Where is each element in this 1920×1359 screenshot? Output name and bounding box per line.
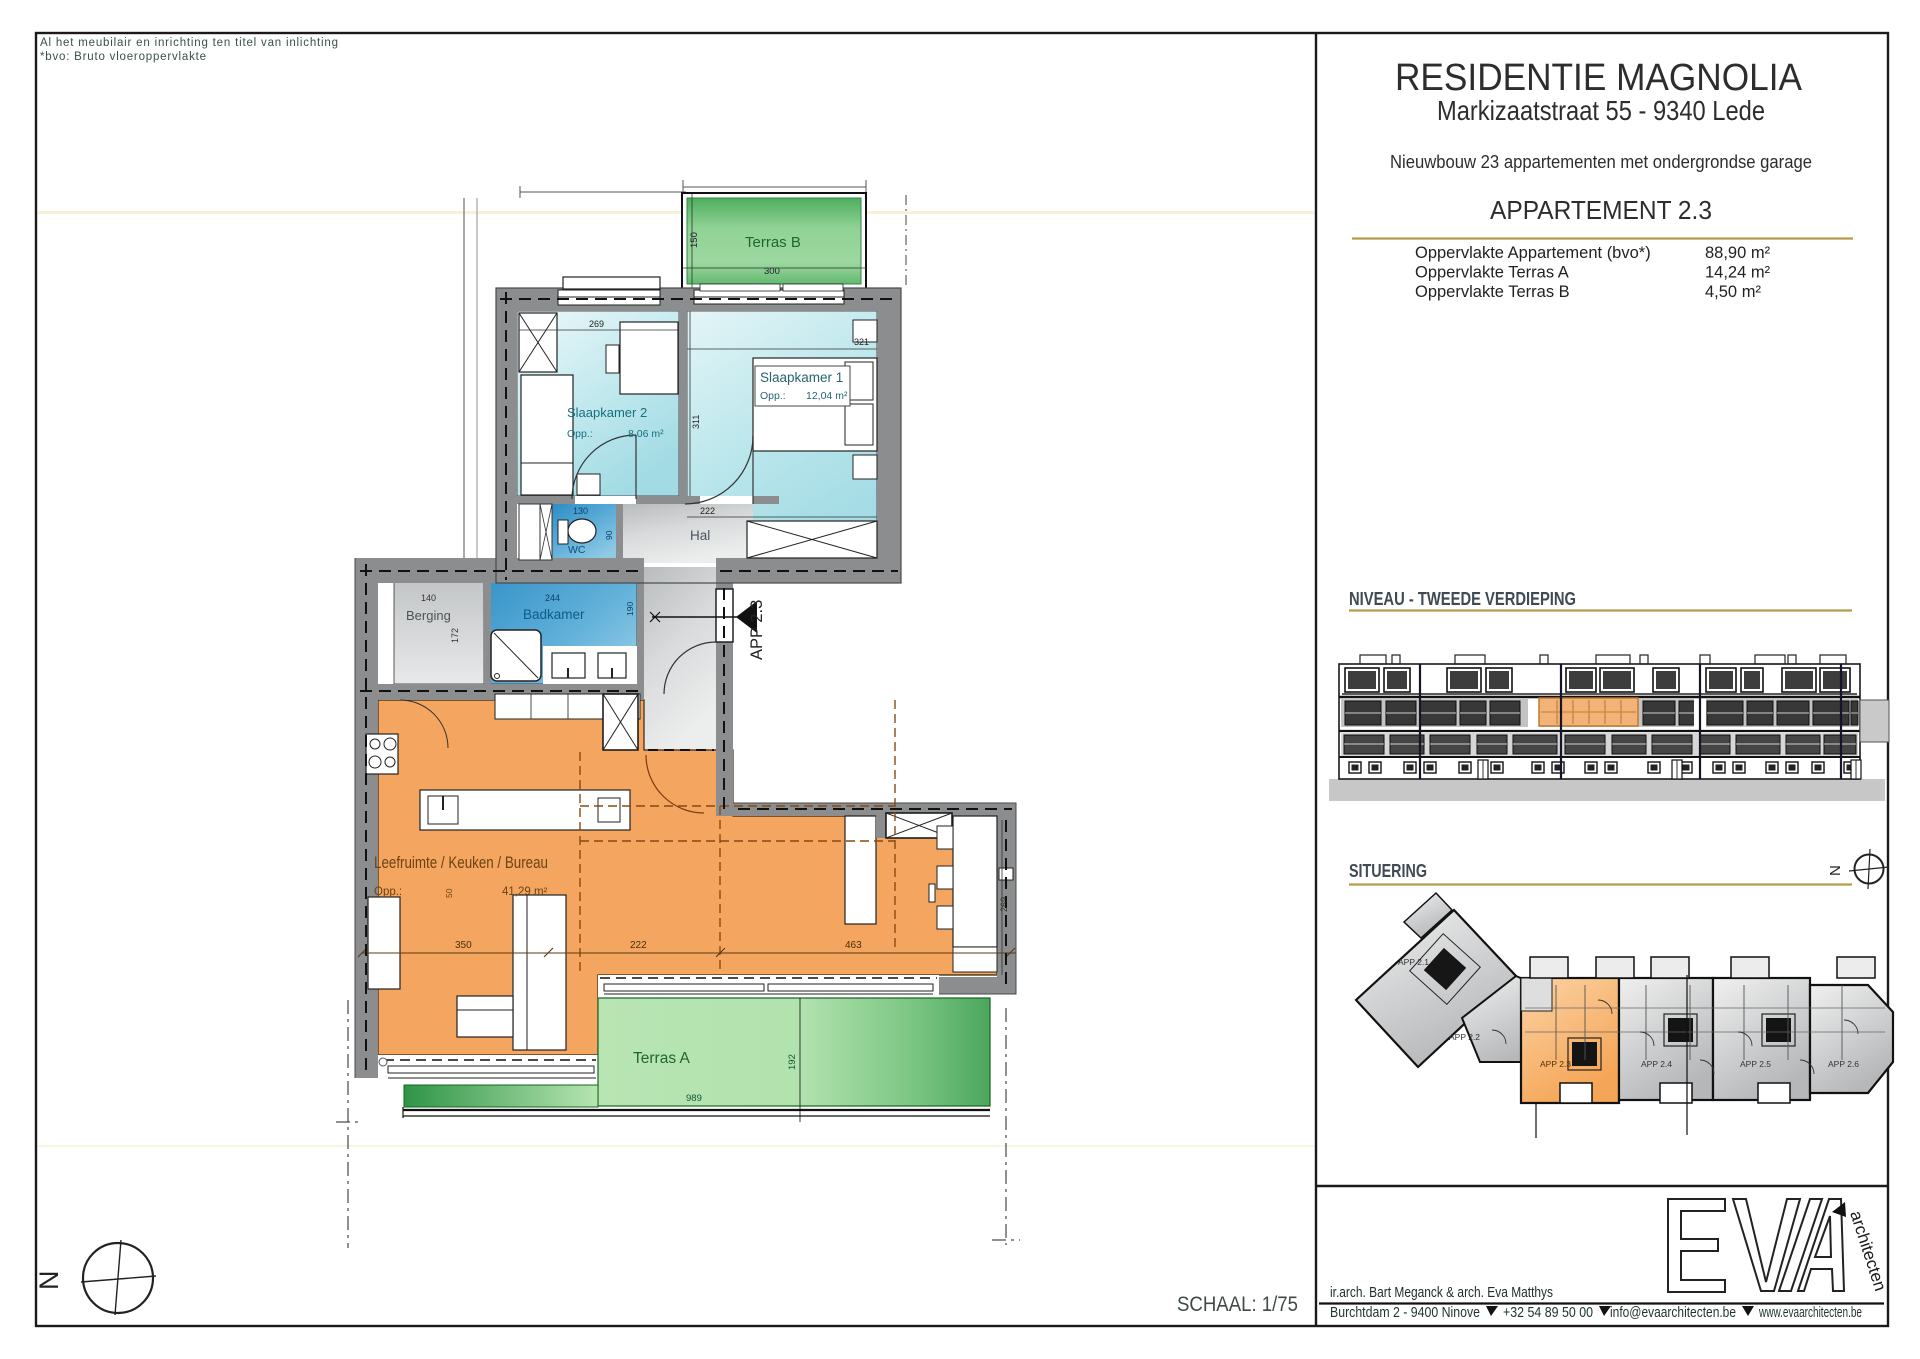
svg-text:Al het meubilair en inrichting: Al het meubilair en inrichting ten titel… (40, 37, 338, 49)
svg-text:Hal: Hal (690, 528, 710, 543)
svg-text:Markizaatstraat 55 - 9340 Lede: Markizaatstraat 55 - 9340 Lede (1437, 95, 1765, 126)
svg-text:172: 172 (450, 628, 460, 643)
svg-text:WC: WC (568, 544, 586, 556)
svg-text:SITUERING: SITUERING (1349, 861, 1427, 881)
svg-text:269: 269 (589, 319, 604, 329)
svg-text:Burchtdam 2 - 9400 Ninove: Burchtdam 2 - 9400 Ninove (1330, 1304, 1480, 1321)
svg-text:APP 2.4: APP 2.4 (1641, 1059, 1672, 1069)
svg-text:88,90 m²: 88,90 m² (1705, 244, 1771, 262)
svg-text:4,50 m²: 4,50 m² (1705, 283, 1761, 301)
svg-text:192: 192 (787, 1054, 798, 1070)
svg-text:50: 50 (444, 888, 454, 898)
svg-text:222: 222 (700, 506, 715, 516)
svg-text:N: N (1827, 865, 1844, 876)
svg-text:www.evaarchitecten.be: www.evaarchitecten.be (1758, 1304, 1862, 1321)
svg-text:RESIDENTIE MAGNOLIA: RESIDENTIE MAGNOLIA (1395, 57, 1803, 99)
svg-text:Oppervlakte Appartement (bvo*): Oppervlakte Appartement (bvo*) (1415, 244, 1651, 262)
svg-text:info@evaarchitecten.be: info@evaarchitecten.be (1610, 1304, 1736, 1321)
svg-text:463: 463 (845, 940, 862, 951)
svg-text:Slaapkamer 2: Slaapkamer 2 (567, 405, 647, 420)
svg-text:150: 150 (689, 232, 700, 248)
svg-text:350: 350 (455, 940, 472, 951)
svg-text:Nieuwbouw 23 appartementen met: Nieuwbouw 23 appartementen met ondergron… (1390, 151, 1812, 172)
svg-text:Leefruimte / Keuken / Bureau: Leefruimte / Keuken / Bureau (374, 854, 548, 872)
svg-text:*bvo: Bruto vloeroppervlakte: *bvo: Bruto vloeroppervlakte (40, 51, 206, 63)
svg-text:989: 989 (686, 1093, 702, 1104)
svg-text:Badkamer: Badkamer (523, 607, 585, 622)
svg-text:190: 190 (625, 602, 635, 616)
svg-text:Oppervlakte Terras B: Oppervlakte Terras B (1415, 283, 1570, 301)
svg-text:222: 222 (630, 940, 647, 951)
svg-text:APP 2.5: APP 2.5 (1740, 1059, 1771, 1069)
svg-text:APP 2.3: APP 2.3 (1540, 1059, 1571, 1069)
svg-text:90: 90 (604, 530, 614, 540)
svg-text:APPARTEMENT 2.3: APPARTEMENT 2.3 (1490, 195, 1712, 225)
svg-text:APP 2.1: APP 2.1 (1398, 957, 1429, 967)
svg-text:Terras B: Terras B (745, 234, 801, 251)
svg-text:321: 321 (854, 337, 869, 347)
svg-text:12,04 m²: 12,04 m² (806, 390, 848, 402)
svg-text:N: N (34, 1271, 64, 1291)
svg-text:130: 130 (573, 506, 588, 516)
svg-text:244: 244 (545, 593, 560, 603)
svg-text:Opp.:: Opp.: (567, 428, 593, 440)
svg-text:+32 54 89 50 00: +32 54 89 50 00 (1503, 1304, 1593, 1321)
svg-text:Slaapkamer 1: Slaapkamer 1 (760, 370, 843, 385)
svg-text:269: 269 (999, 897, 1009, 912)
svg-text:APP 2.6: APP 2.6 (1828, 1059, 1859, 1069)
svg-text:Terras A: Terras A (633, 1050, 691, 1067)
svg-text:SCHAAL: 1/75: SCHAAL: 1/75 (1177, 1293, 1298, 1316)
svg-text:Berging: Berging (406, 608, 451, 623)
svg-text:41,29 m²: 41,29 m² (502, 886, 548, 898)
svg-text:311: 311 (691, 415, 701, 429)
svg-text:Opp.:: Opp.: (374, 886, 402, 898)
svg-text:APP 2.3: APP 2.3 (748, 600, 766, 660)
svg-text:ir.arch. Bart Meganck & arch.: ir.arch. Bart Meganck & arch. Eva Matthy… (1330, 1284, 1553, 1301)
svg-text:14,24 m²: 14,24 m² (1705, 264, 1771, 282)
svg-text:140: 140 (421, 593, 436, 603)
svg-text:Opp.:: Opp.: (760, 390, 786, 402)
svg-text:APP 2.2: APP 2.2 (1449, 1032, 1480, 1042)
svg-text:Oppervlakte Terras A: Oppervlakte Terras A (1415, 264, 1569, 282)
svg-text:NIVEAU - TWEEDE VERDIEPING: NIVEAU - TWEEDE VERDIEPING (1349, 589, 1576, 609)
svg-text:8,06 m²: 8,06 m² (628, 428, 664, 440)
